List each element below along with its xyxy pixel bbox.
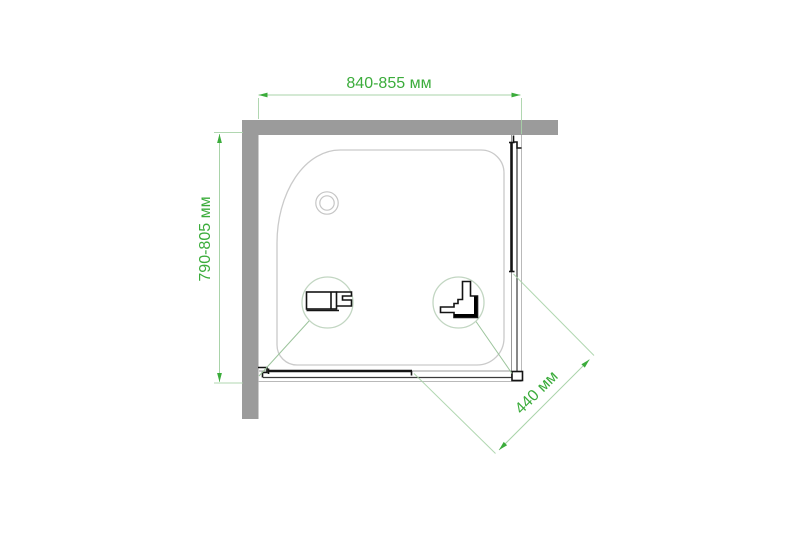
width-arrow-left: [259, 93, 268, 98]
technical-drawing: 840-855 мм 790-805 мм 440 мм: [0, 0, 800, 533]
corner-connector-bracket: [512, 372, 523, 381]
shower-enclosure-plan-svg: 840-855 мм 790-805 мм 440 мм: [0, 0, 800, 533]
right-glass-assembly: [509, 135, 522, 382]
bottom-glass-assembly: [258, 368, 523, 382]
depth-dimension: 790-805 мм: [197, 133, 243, 384]
shower-tray: [277, 150, 504, 365]
left-wall: [242, 120, 259, 419]
depth-arrow-top: [217, 134, 222, 143]
left-detail-circle: [302, 277, 353, 328]
top-wall: [242, 120, 558, 135]
depth-arrow-bottom: [217, 373, 222, 382]
width-dimension-label: 840-855 мм: [346, 75, 431, 92]
entry-ext-upper: [514, 274, 595, 356]
depth-dimension-label: 790-805 мм: [197, 196, 214, 281]
width-arrow-right: [512, 93, 521, 98]
wall-profile-detail: [302, 277, 353, 328]
entry-ext-lower: [414, 374, 496, 454]
tray-outline: [277, 150, 504, 365]
corner-connector-detail: [433, 277, 484, 328]
right-wall-bracket: [514, 136, 522, 149]
